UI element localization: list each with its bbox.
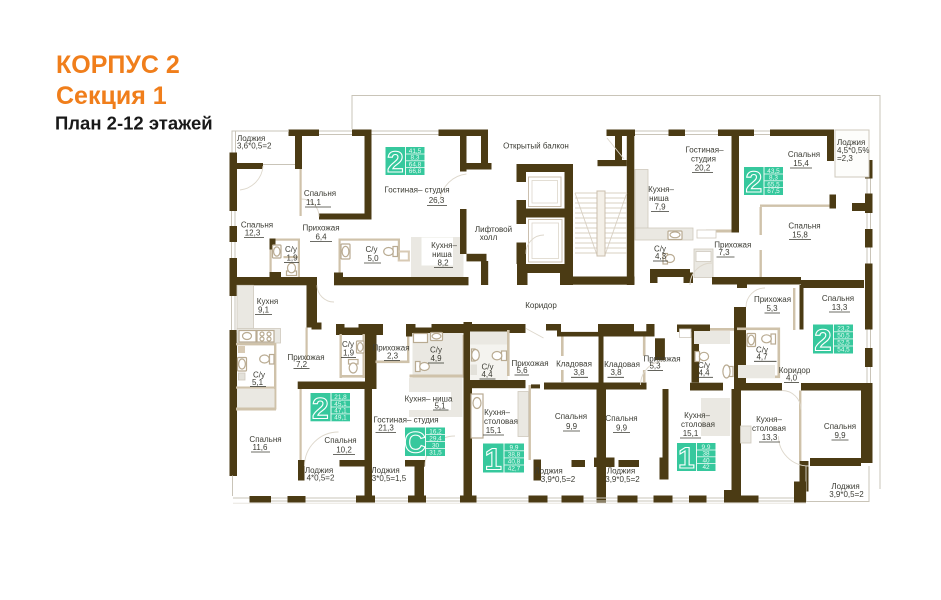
svg-text:2: 2 <box>814 323 831 358</box>
svg-text:Секция 1: Секция 1 <box>56 82 167 110</box>
svg-text:Кухня–: Кухня– <box>431 241 457 250</box>
svg-text:1,9: 1,9 <box>286 254 298 263</box>
svg-text:20,2: 20,2 <box>695 164 711 173</box>
svg-text:3,9*0,5=2: 3,9*0,5=2 <box>541 475 576 484</box>
svg-text:5,0: 5,0 <box>367 254 379 263</box>
svg-text:5,6: 5,6 <box>516 366 528 375</box>
svg-text:2: 2 <box>745 166 762 199</box>
svg-text:13,3: 13,3 <box>832 303 848 312</box>
svg-text:2: 2 <box>387 146 404 179</box>
svg-text:23,2: 23,2 <box>837 325 850 332</box>
svg-text:15,1: 15,1 <box>683 429 699 438</box>
svg-text:8,2: 8,2 <box>437 259 449 268</box>
svg-text:2,3: 2,3 <box>387 352 399 361</box>
svg-text:столовая: столовая <box>752 424 786 433</box>
svg-text:12,3: 12,3 <box>245 229 261 238</box>
svg-text:4,4: 4,4 <box>481 370 493 379</box>
svg-text:1: 1 <box>485 442 502 477</box>
svg-text:Спальня: Спальня <box>304 189 336 198</box>
svg-text:С: С <box>404 427 426 460</box>
svg-text:Спальня: Спальня <box>788 222 820 231</box>
svg-text:Кухня–: Кухня– <box>756 415 782 424</box>
svg-text:9,9: 9,9 <box>566 422 578 431</box>
svg-text:54,5: 54,5 <box>837 347 850 354</box>
svg-text:Кухня–: Кухня– <box>484 408 510 417</box>
svg-text:52,5: 52,5 <box>837 340 850 347</box>
svg-text:3,6*0,5=2: 3,6*0,5=2 <box>237 142 272 151</box>
svg-text:42,7: 42,7 <box>508 466 521 473</box>
svg-text:Кухня– ниша: Кухня– ниша <box>405 395 453 404</box>
svg-text:Коридор: Коридор <box>525 301 557 310</box>
svg-text:Кухня–: Кухня– <box>684 411 710 420</box>
svg-text:67,5: 67,5 <box>767 188 780 195</box>
svg-text:=2,3: =2,3 <box>837 154 853 163</box>
svg-text:3,8: 3,8 <box>573 368 585 377</box>
svg-text:4,0: 4,0 <box>786 374 798 383</box>
svg-text:КОРПУС 2: КОРПУС 2 <box>56 51 180 79</box>
svg-text:Прихожая: Прихожая <box>754 295 791 304</box>
svg-text:1: 1 <box>678 442 695 475</box>
svg-text:26,3: 26,3 <box>429 196 445 205</box>
svg-text:С/у: С/у <box>366 245 378 254</box>
svg-text:11,6: 11,6 <box>253 443 269 452</box>
svg-text:9,9: 9,9 <box>616 424 628 433</box>
svg-text:Прихожая: Прихожая <box>302 224 339 233</box>
svg-text:3,8: 3,8 <box>610 368 622 377</box>
svg-text:5,1: 5,1 <box>252 378 264 387</box>
svg-text:3,9*0,5=2: 3,9*0,5=2 <box>605 475 640 484</box>
svg-text:Кухня–: Кухня– <box>648 185 674 194</box>
svg-text:31,5: 31,5 <box>429 449 442 456</box>
svg-text:66,8: 66,8 <box>409 168 422 175</box>
svg-text:Гостиная– студия: Гостиная– студия <box>384 186 449 195</box>
svg-text:Спальня: Спальня <box>824 422 856 431</box>
svg-text:9,9: 9,9 <box>834 431 846 440</box>
svg-text:столовая: столовая <box>484 417 518 426</box>
svg-text:студия: студия <box>691 155 716 164</box>
svg-text:11,1: 11,1 <box>306 198 322 207</box>
svg-text:7,3: 7,3 <box>718 248 730 257</box>
svg-text:4,7: 4,7 <box>756 353 768 362</box>
svg-text:Открытый балкон: Открытый балкон <box>503 142 569 151</box>
svg-text:4,9: 4,9 <box>430 354 442 363</box>
svg-text:3,9*0,5=2: 3,9*0,5=2 <box>829 490 864 499</box>
svg-text:3*0,5=1,5: 3*0,5=1,5 <box>372 474 407 483</box>
svg-text:4,3: 4,3 <box>655 252 667 261</box>
svg-text:Спальня: Спальня <box>555 412 587 421</box>
svg-text:Спальня: Спальня <box>324 436 356 445</box>
svg-text:Спальня: Спальня <box>605 414 637 423</box>
svg-text:Спальня: Спальня <box>788 150 820 159</box>
svg-text:29,4: 29,4 <box>429 435 442 442</box>
svg-text:15,8: 15,8 <box>792 231 808 240</box>
svg-text:49,1: 49,1 <box>334 415 347 422</box>
svg-text:5,3: 5,3 <box>766 304 778 313</box>
svg-text:столовая: столовая <box>681 420 715 429</box>
svg-text:30: 30 <box>432 442 440 449</box>
svg-text:10,2: 10,2 <box>336 446 352 455</box>
svg-text:7,9: 7,9 <box>654 203 666 212</box>
svg-text:21,3: 21,3 <box>378 424 394 433</box>
svg-text:Гостиная–: Гостиная– <box>685 146 724 155</box>
svg-text:4,4: 4,4 <box>698 369 710 378</box>
svg-text:1,9: 1,9 <box>343 349 355 358</box>
svg-text:9,1: 9,1 <box>258 306 270 315</box>
svg-text:Спальня: Спальня <box>822 294 854 303</box>
svg-text:5,3: 5,3 <box>649 362 661 371</box>
svg-text:50,5: 50,5 <box>837 333 850 340</box>
svg-text:7,2: 7,2 <box>296 360 308 369</box>
svg-text:16,2: 16,2 <box>429 428 442 435</box>
svg-text:6,4: 6,4 <box>315 233 327 242</box>
svg-text:42: 42 <box>702 464 710 471</box>
svg-text:2: 2 <box>312 392 329 425</box>
svg-text:9,9: 9,9 <box>510 444 519 451</box>
svg-text:4*0,5=2: 4*0,5=2 <box>307 474 335 483</box>
svg-text:холл: холл <box>480 233 498 242</box>
svg-text:5,1: 5,1 <box>434 402 446 411</box>
svg-text:38,8: 38,8 <box>508 452 521 459</box>
svg-text:13,3: 13,3 <box>762 433 778 442</box>
svg-text:15,1: 15,1 <box>486 426 502 435</box>
svg-text:15,4: 15,4 <box>793 159 809 168</box>
svg-text:40,8: 40,8 <box>508 459 521 466</box>
svg-text:План 2-12 этажей: План 2-12 этажей <box>55 113 213 134</box>
